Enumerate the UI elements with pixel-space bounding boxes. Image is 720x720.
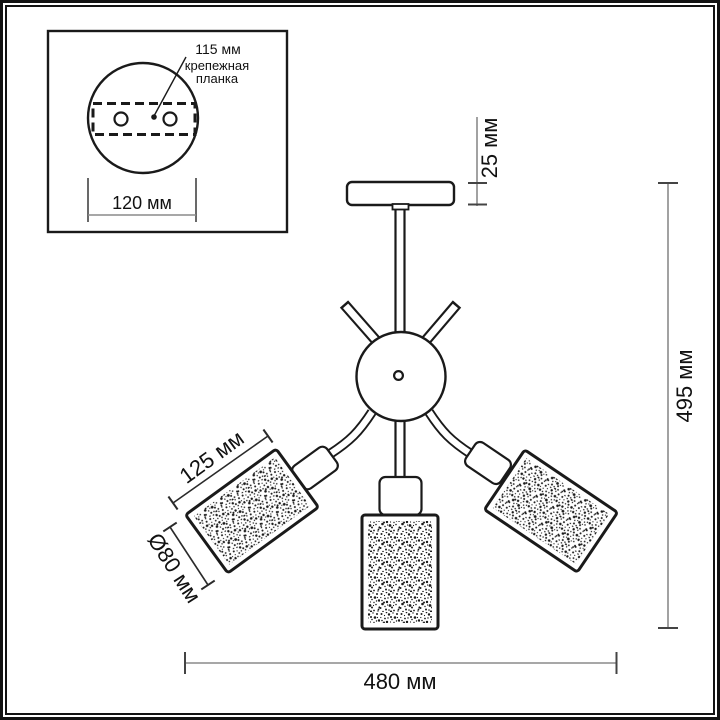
center-socket xyxy=(380,477,422,515)
hub-center-dot xyxy=(394,371,403,380)
lower-stem xyxy=(396,418,405,480)
diagram-page: 115 мм крепежная планка 120 мм xyxy=(0,0,720,720)
mounting-inset: 115 мм крепежная планка 120 мм xyxy=(48,31,287,232)
canopy-circle xyxy=(88,63,198,173)
label-480mm: 480 мм xyxy=(363,669,436,694)
label-120mm: 120 мм xyxy=(112,193,172,213)
mount-hole-left xyxy=(115,113,128,126)
label-495mm: 495 мм xyxy=(672,349,697,422)
label-bracket-line2: планка xyxy=(196,71,239,86)
mount-hole-right xyxy=(164,113,177,126)
label-25mm: 25 мм xyxy=(477,118,502,179)
canopy-stem-joint xyxy=(393,204,409,210)
label-115mm: 115 мм xyxy=(195,41,240,57)
ceiling-canopy xyxy=(347,182,454,205)
lamp-dimension-drawing: 115 мм крепежная планка 120 мм xyxy=(0,0,720,720)
center-shade xyxy=(362,515,438,629)
upper-stem xyxy=(396,203,405,336)
